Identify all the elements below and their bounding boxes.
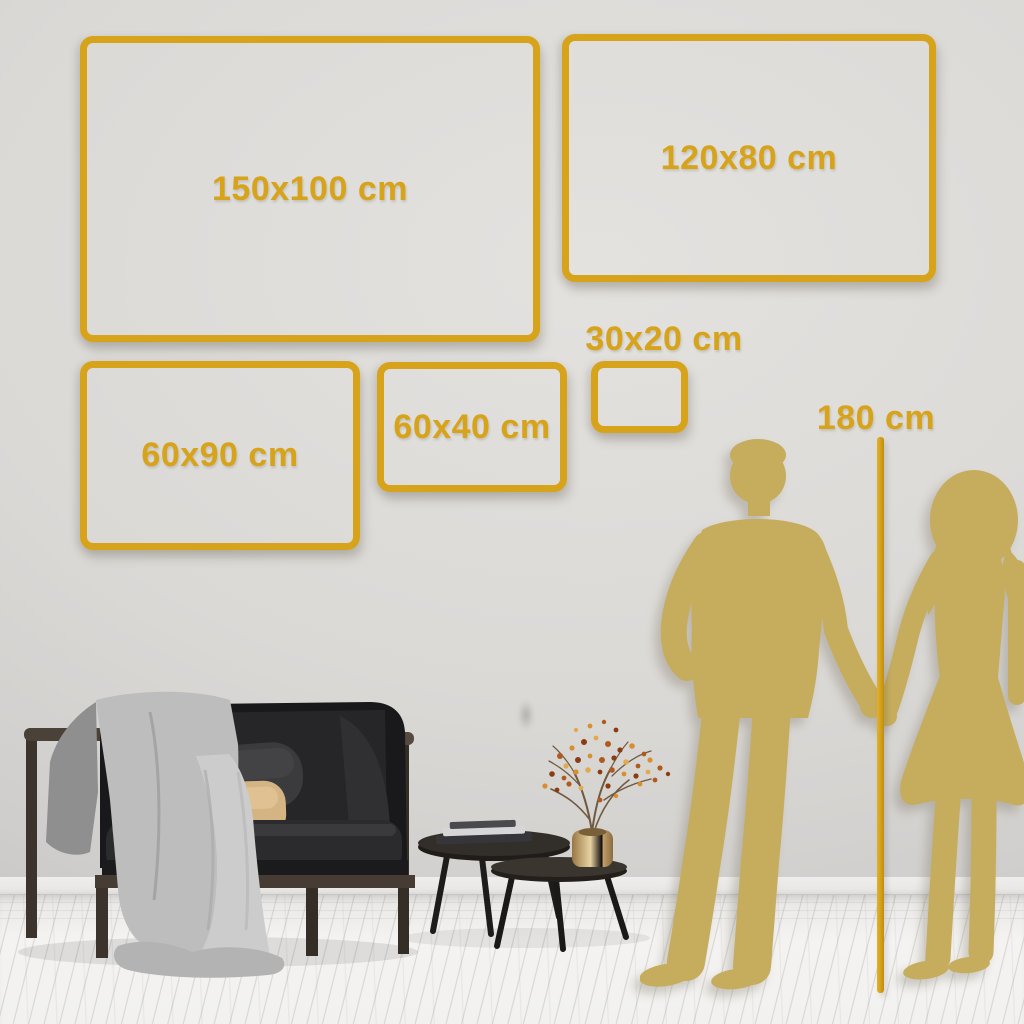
size-label-150x100: 150x100 cm (212, 170, 408, 209)
height-reference-label: 180 cm (806, 399, 946, 438)
baseboard (0, 877, 1024, 895)
size-frame-150x100: 150x100 cm (80, 36, 540, 342)
size-frame-60x90: 60x90 cm (80, 361, 360, 550)
size-label-30x20: 30x20 cm (579, 320, 749, 359)
size-label-60x40: 60x40 cm (393, 408, 550, 447)
size-label-60x90: 60x90 cm (141, 436, 298, 475)
size-frame-30x20 (591, 361, 688, 433)
height-reference-line (877, 437, 884, 993)
size-frame-120x80: 120x80 cm (562, 34, 936, 282)
size-frame-60x40: 60x40 cm (377, 362, 567, 492)
wall-shadow-smudge (518, 700, 534, 730)
size-label-120x80: 120x80 cm (661, 139, 838, 178)
floor-plank-lines (0, 895, 1024, 921)
size-guide-scene: 180 cm 150x100 cm 120x80 cm 60x90 cm 60x… (0, 0, 1024, 1024)
